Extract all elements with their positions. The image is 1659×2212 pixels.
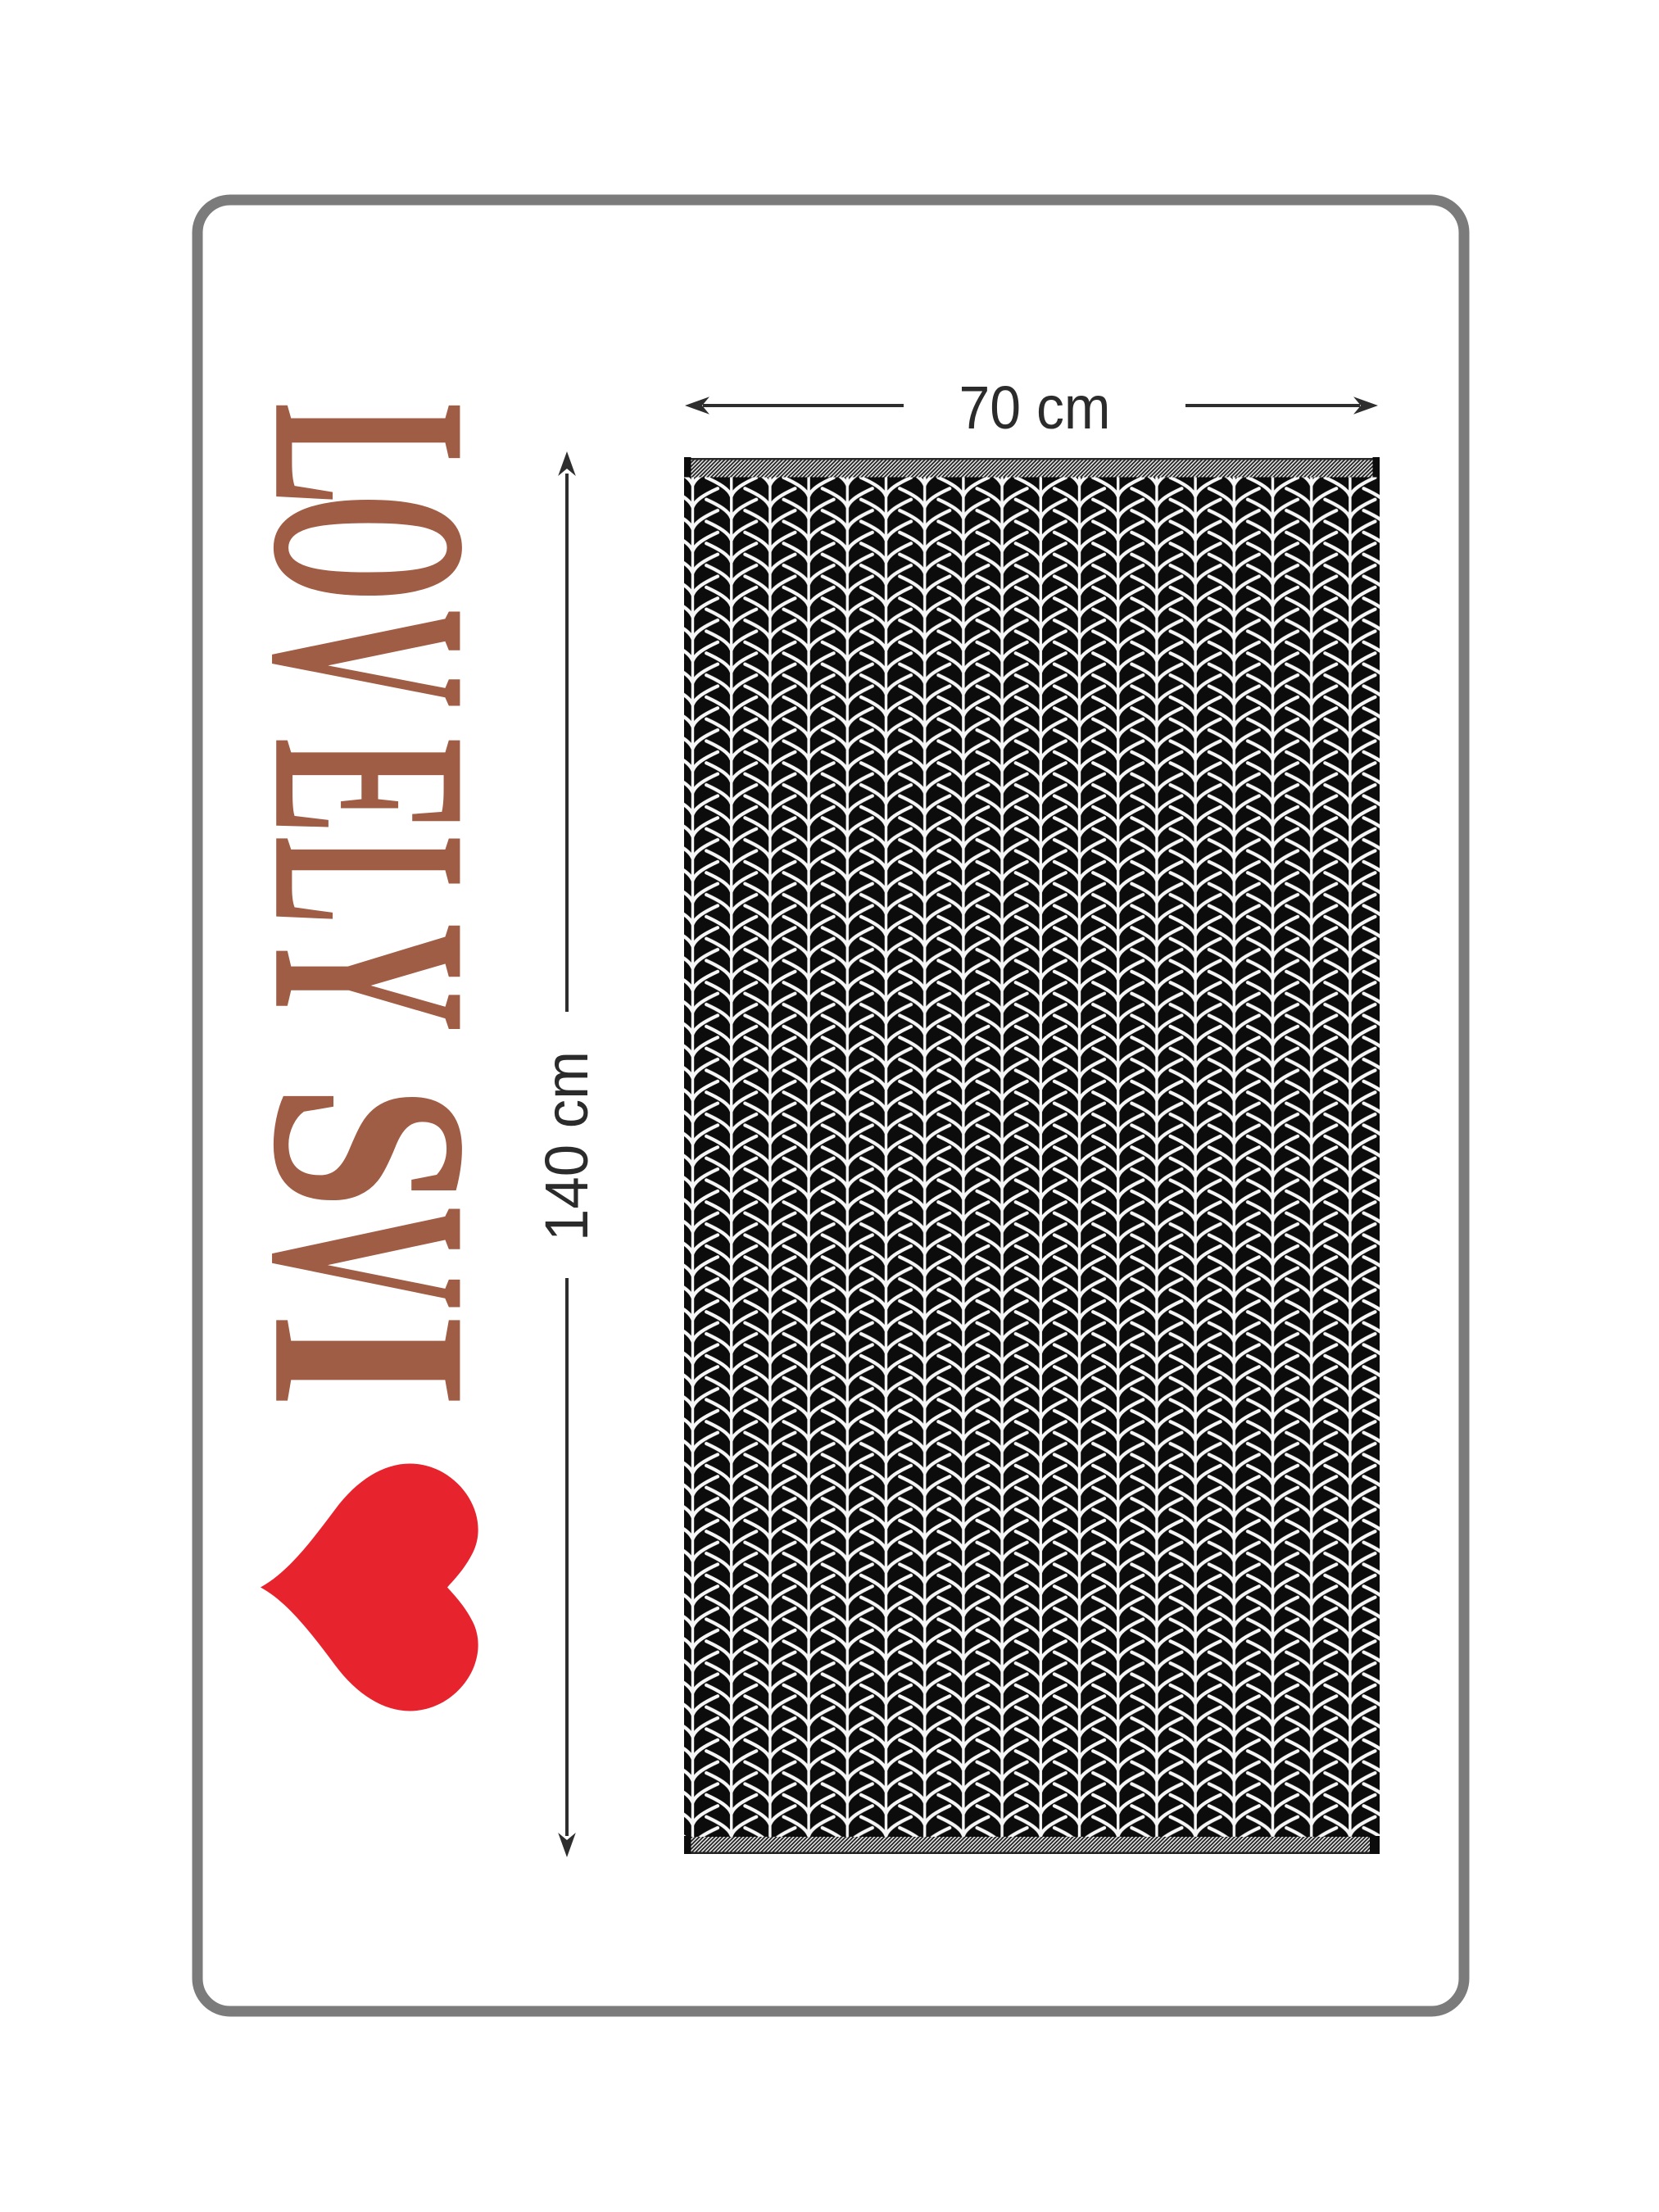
svg-text:140 cm: 140 cm [533, 1051, 601, 1241]
svg-text:Y: Y [216, 923, 525, 1031]
svg-text:I: I [216, 1312, 525, 1408]
svg-text:L: L [216, 836, 525, 924]
svg-text:E: E [216, 738, 525, 834]
svg-text:O: O [216, 493, 525, 602]
svg-text:V: V [216, 610, 525, 707]
svg-text:70 cm: 70 cm [959, 374, 1111, 442]
svg-text:L: L [216, 403, 525, 505]
svg-text:S: S [216, 1085, 525, 1209]
svg-text:V: V [216, 1208, 525, 1308]
